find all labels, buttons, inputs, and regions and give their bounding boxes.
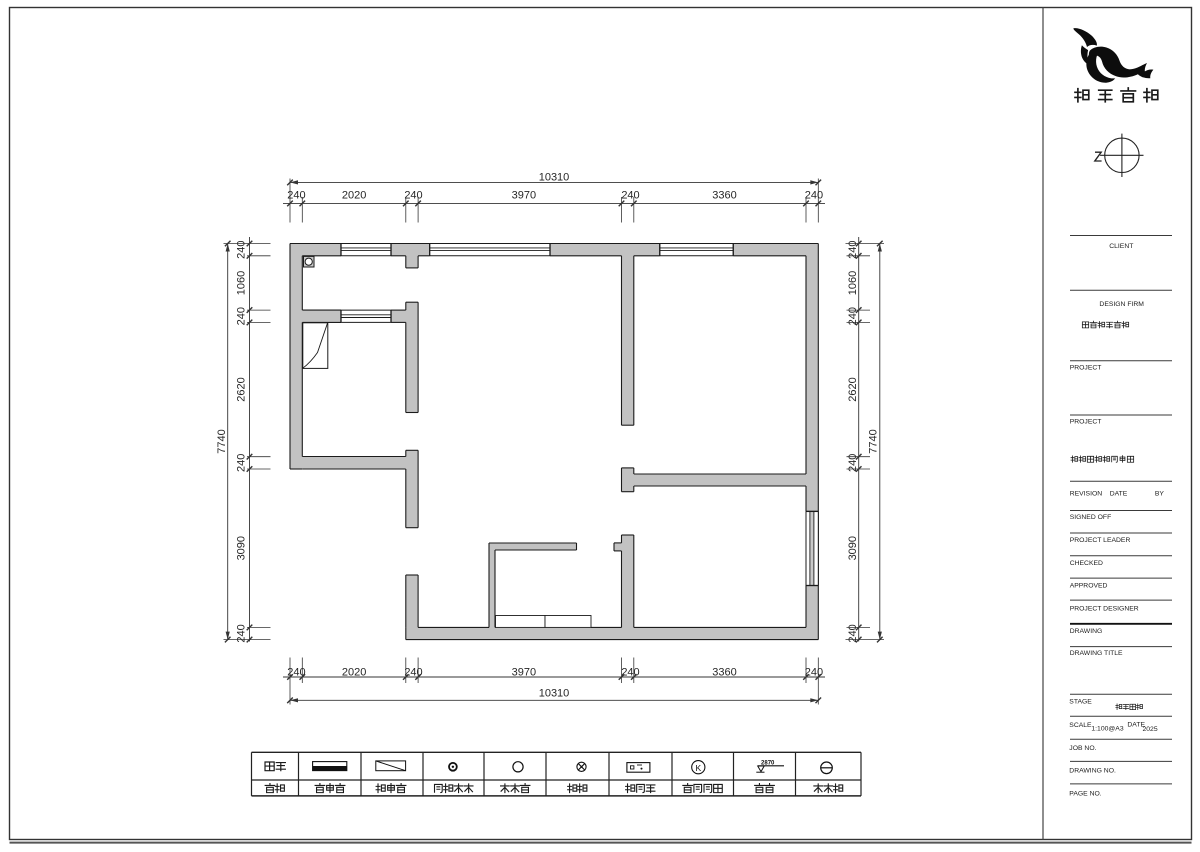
svg-text:2620: 2620: [847, 377, 859, 401]
svg-text:240: 240: [847, 624, 859, 642]
svg-text:10310: 10310: [539, 687, 570, 699]
svg-text:PROJECT LEADER: PROJECT LEADER: [1070, 537, 1131, 544]
svg-text:SIGNED OFF: SIGNED OFF: [1070, 514, 1112, 521]
svg-text:1060: 1060: [847, 271, 859, 295]
svg-text:10310: 10310: [539, 171, 570, 183]
svg-text:3970: 3970: [512, 190, 536, 202]
svg-text:2020: 2020: [342, 666, 366, 678]
svg-text:CHECKED: CHECKED: [1070, 560, 1103, 567]
svg-text:240: 240: [235, 624, 247, 642]
svg-text:3090: 3090: [235, 536, 247, 560]
svg-text:3090: 3090: [847, 536, 859, 560]
svg-text:240: 240: [235, 307, 247, 325]
svg-text:DESIGN FIRM: DESIGN FIRM: [1099, 301, 1144, 308]
svg-text:DRAWING: DRAWING: [1070, 628, 1103, 635]
svg-text:240: 240: [621, 190, 639, 202]
svg-text:1060: 1060: [235, 271, 247, 295]
svg-text:240: 240: [621, 666, 639, 678]
svg-text:240: 240: [847, 454, 859, 472]
svg-text:240: 240: [847, 241, 859, 259]
svg-text:240: 240: [235, 454, 247, 472]
svg-text:APPROVED: APPROVED: [1070, 583, 1108, 590]
svg-text:240: 240: [805, 190, 823, 202]
svg-text:3970: 3970: [512, 666, 536, 678]
svg-text:240: 240: [287, 190, 305, 202]
svg-text:3360: 3360: [712, 190, 736, 202]
svg-text:2620: 2620: [235, 377, 247, 401]
svg-text:240: 240: [847, 307, 859, 325]
svg-text:240: 240: [235, 241, 247, 259]
svg-text:DATE: DATE: [1110, 491, 1128, 498]
svg-text:240: 240: [404, 190, 422, 202]
svg-text:K: K: [695, 763, 701, 773]
svg-text:CLIENT: CLIENT: [1109, 243, 1133, 250]
svg-text:DRAWING NO.: DRAWING NO.: [1069, 768, 1116, 775]
svg-text:3360: 3360: [712, 666, 736, 678]
svg-text:240: 240: [805, 666, 823, 678]
svg-text:STAGE: STAGE: [1069, 698, 1092, 705]
svg-text:SCALE: SCALE: [1069, 722, 1092, 729]
svg-text:7740: 7740: [216, 429, 228, 453]
svg-text:PROJECT: PROJECT: [1070, 364, 1102, 371]
svg-text:PAGE NO.: PAGE NO.: [1069, 791, 1101, 798]
svg-text:240: 240: [404, 666, 422, 678]
svg-text:DRAWING TITLE: DRAWING TITLE: [1070, 650, 1123, 657]
svg-text:BY: BY: [1155, 491, 1165, 498]
svg-text:7740: 7740: [868, 429, 880, 453]
svg-text:2020: 2020: [342, 190, 366, 202]
svg-text:PROJECT: PROJECT: [1070, 419, 1102, 426]
svg-text:240: 240: [287, 666, 305, 678]
svg-text:1:100@A3: 1:100@A3: [1091, 725, 1123, 732]
svg-text:REVISION: REVISION: [1070, 491, 1103, 498]
svg-text:JOB NO.: JOB NO.: [1069, 745, 1096, 752]
svg-text:PROJECT DESIGNER: PROJECT DESIGNER: [1070, 605, 1139, 612]
svg-text:2025: 2025: [1143, 726, 1158, 733]
